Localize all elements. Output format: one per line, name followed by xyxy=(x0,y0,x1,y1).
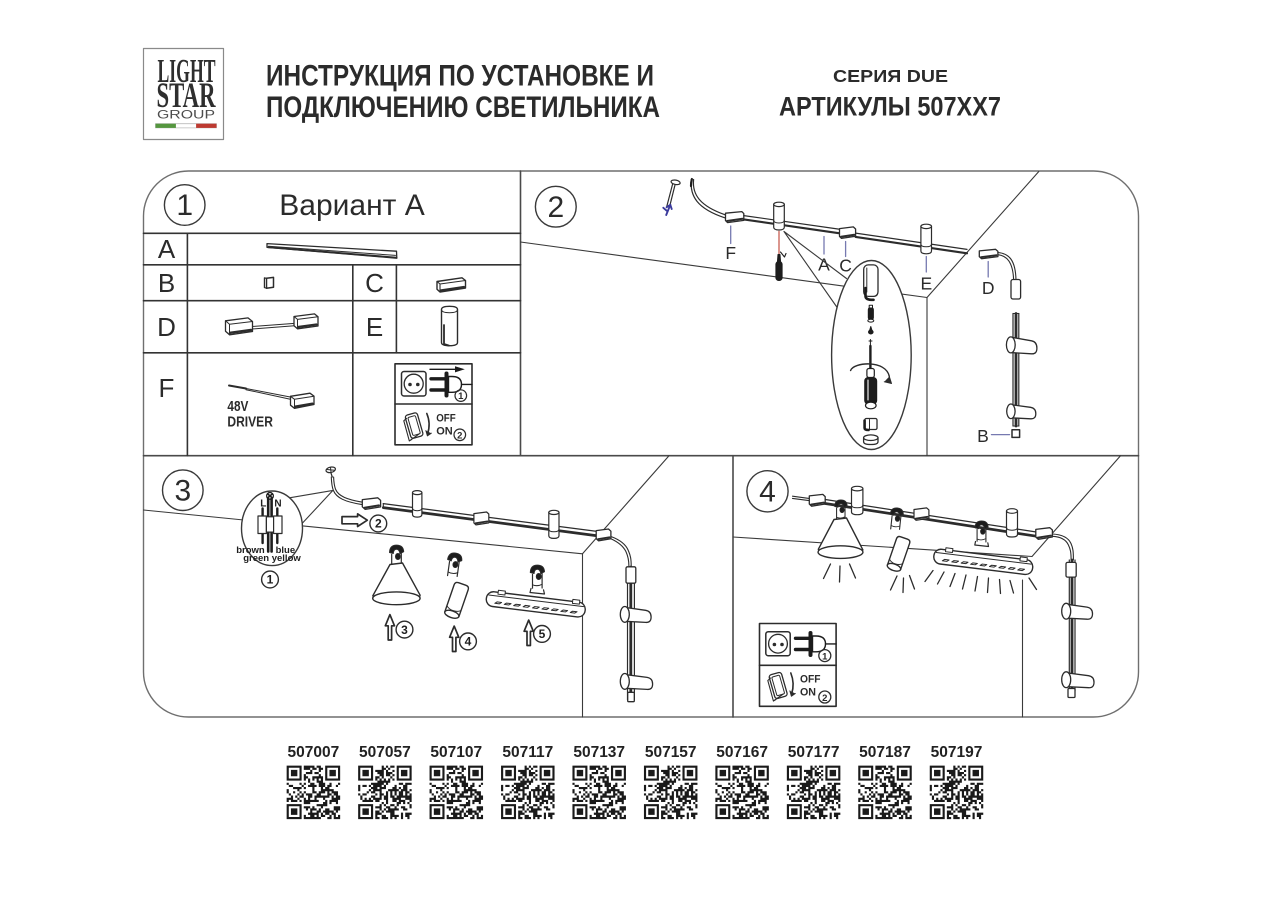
svg-text:C: C xyxy=(839,256,852,276)
svg-text:D: D xyxy=(982,278,995,298)
svg-text:2: 2 xyxy=(457,430,462,441)
svg-text:507137: 507137 xyxy=(573,744,625,761)
svg-text:E: E xyxy=(920,274,932,294)
svg-text:507107: 507107 xyxy=(430,744,482,761)
svg-text:507187: 507187 xyxy=(859,744,911,761)
svg-text:АРТИКУЛЫ 507XX7: АРТИКУЛЫ 507XX7 xyxy=(779,92,1001,122)
svg-text:F: F xyxy=(725,243,736,263)
svg-text:4: 4 xyxy=(759,476,776,509)
svg-text:A: A xyxy=(158,234,176,264)
svg-text:507177: 507177 xyxy=(788,744,840,761)
svg-text:GROUP: GROUP xyxy=(157,109,215,121)
svg-text:3: 3 xyxy=(401,623,408,637)
svg-text:5: 5 xyxy=(539,627,546,641)
svg-text:ПОДКЛЮЧЕНИЮ СВЕТИЛЬНИКА: ПОДКЛЮЧЕНИЮ СВЕТИЛЬНИКА xyxy=(266,91,660,124)
svg-text:2: 2 xyxy=(547,191,564,224)
svg-text:1: 1 xyxy=(267,573,274,587)
svg-text:507057: 507057 xyxy=(359,744,411,761)
svg-text:ON: ON xyxy=(436,426,453,438)
svg-text:2: 2 xyxy=(375,517,382,531)
svg-text:СЕРИЯ DUE: СЕРИЯ DUE xyxy=(833,66,948,86)
svg-text:507197: 507197 xyxy=(931,744,983,761)
svg-text:E: E xyxy=(366,312,383,342)
svg-text:DRIVER: DRIVER xyxy=(227,414,273,431)
svg-text:3: 3 xyxy=(174,475,191,508)
svg-text:ИНСТРУКЦИЯ ПО УСТАНОВКЕ И: ИНСТРУКЦИЯ ПО УСТАНОВКЕ И xyxy=(266,60,654,93)
svg-text:1: 1 xyxy=(176,189,193,222)
svg-text:4: 4 xyxy=(465,635,472,649)
svg-text:D: D xyxy=(157,312,176,342)
svg-text:2: 2 xyxy=(822,693,827,704)
svg-text:1: 1 xyxy=(458,391,464,402)
svg-text:OFF: OFF xyxy=(800,673,821,685)
svg-text:48V: 48V xyxy=(227,398,248,415)
svg-text:Вариант А: Вариант А xyxy=(279,189,424,222)
svg-text:1: 1 xyxy=(822,651,828,662)
svg-text:507167: 507167 xyxy=(716,744,768,761)
svg-text:507157: 507157 xyxy=(645,744,697,761)
svg-text:507117: 507117 xyxy=(502,744,553,761)
svg-text:green yellow: green yellow xyxy=(243,553,301,564)
svg-text:507007: 507007 xyxy=(288,744,340,761)
svg-text:OFF: OFF xyxy=(436,413,456,425)
svg-text:C: C xyxy=(365,268,384,298)
svg-text:B: B xyxy=(158,268,175,298)
svg-text:B: B xyxy=(977,426,989,446)
svg-text:F: F xyxy=(159,373,175,403)
svg-text:ON: ON xyxy=(800,687,816,699)
